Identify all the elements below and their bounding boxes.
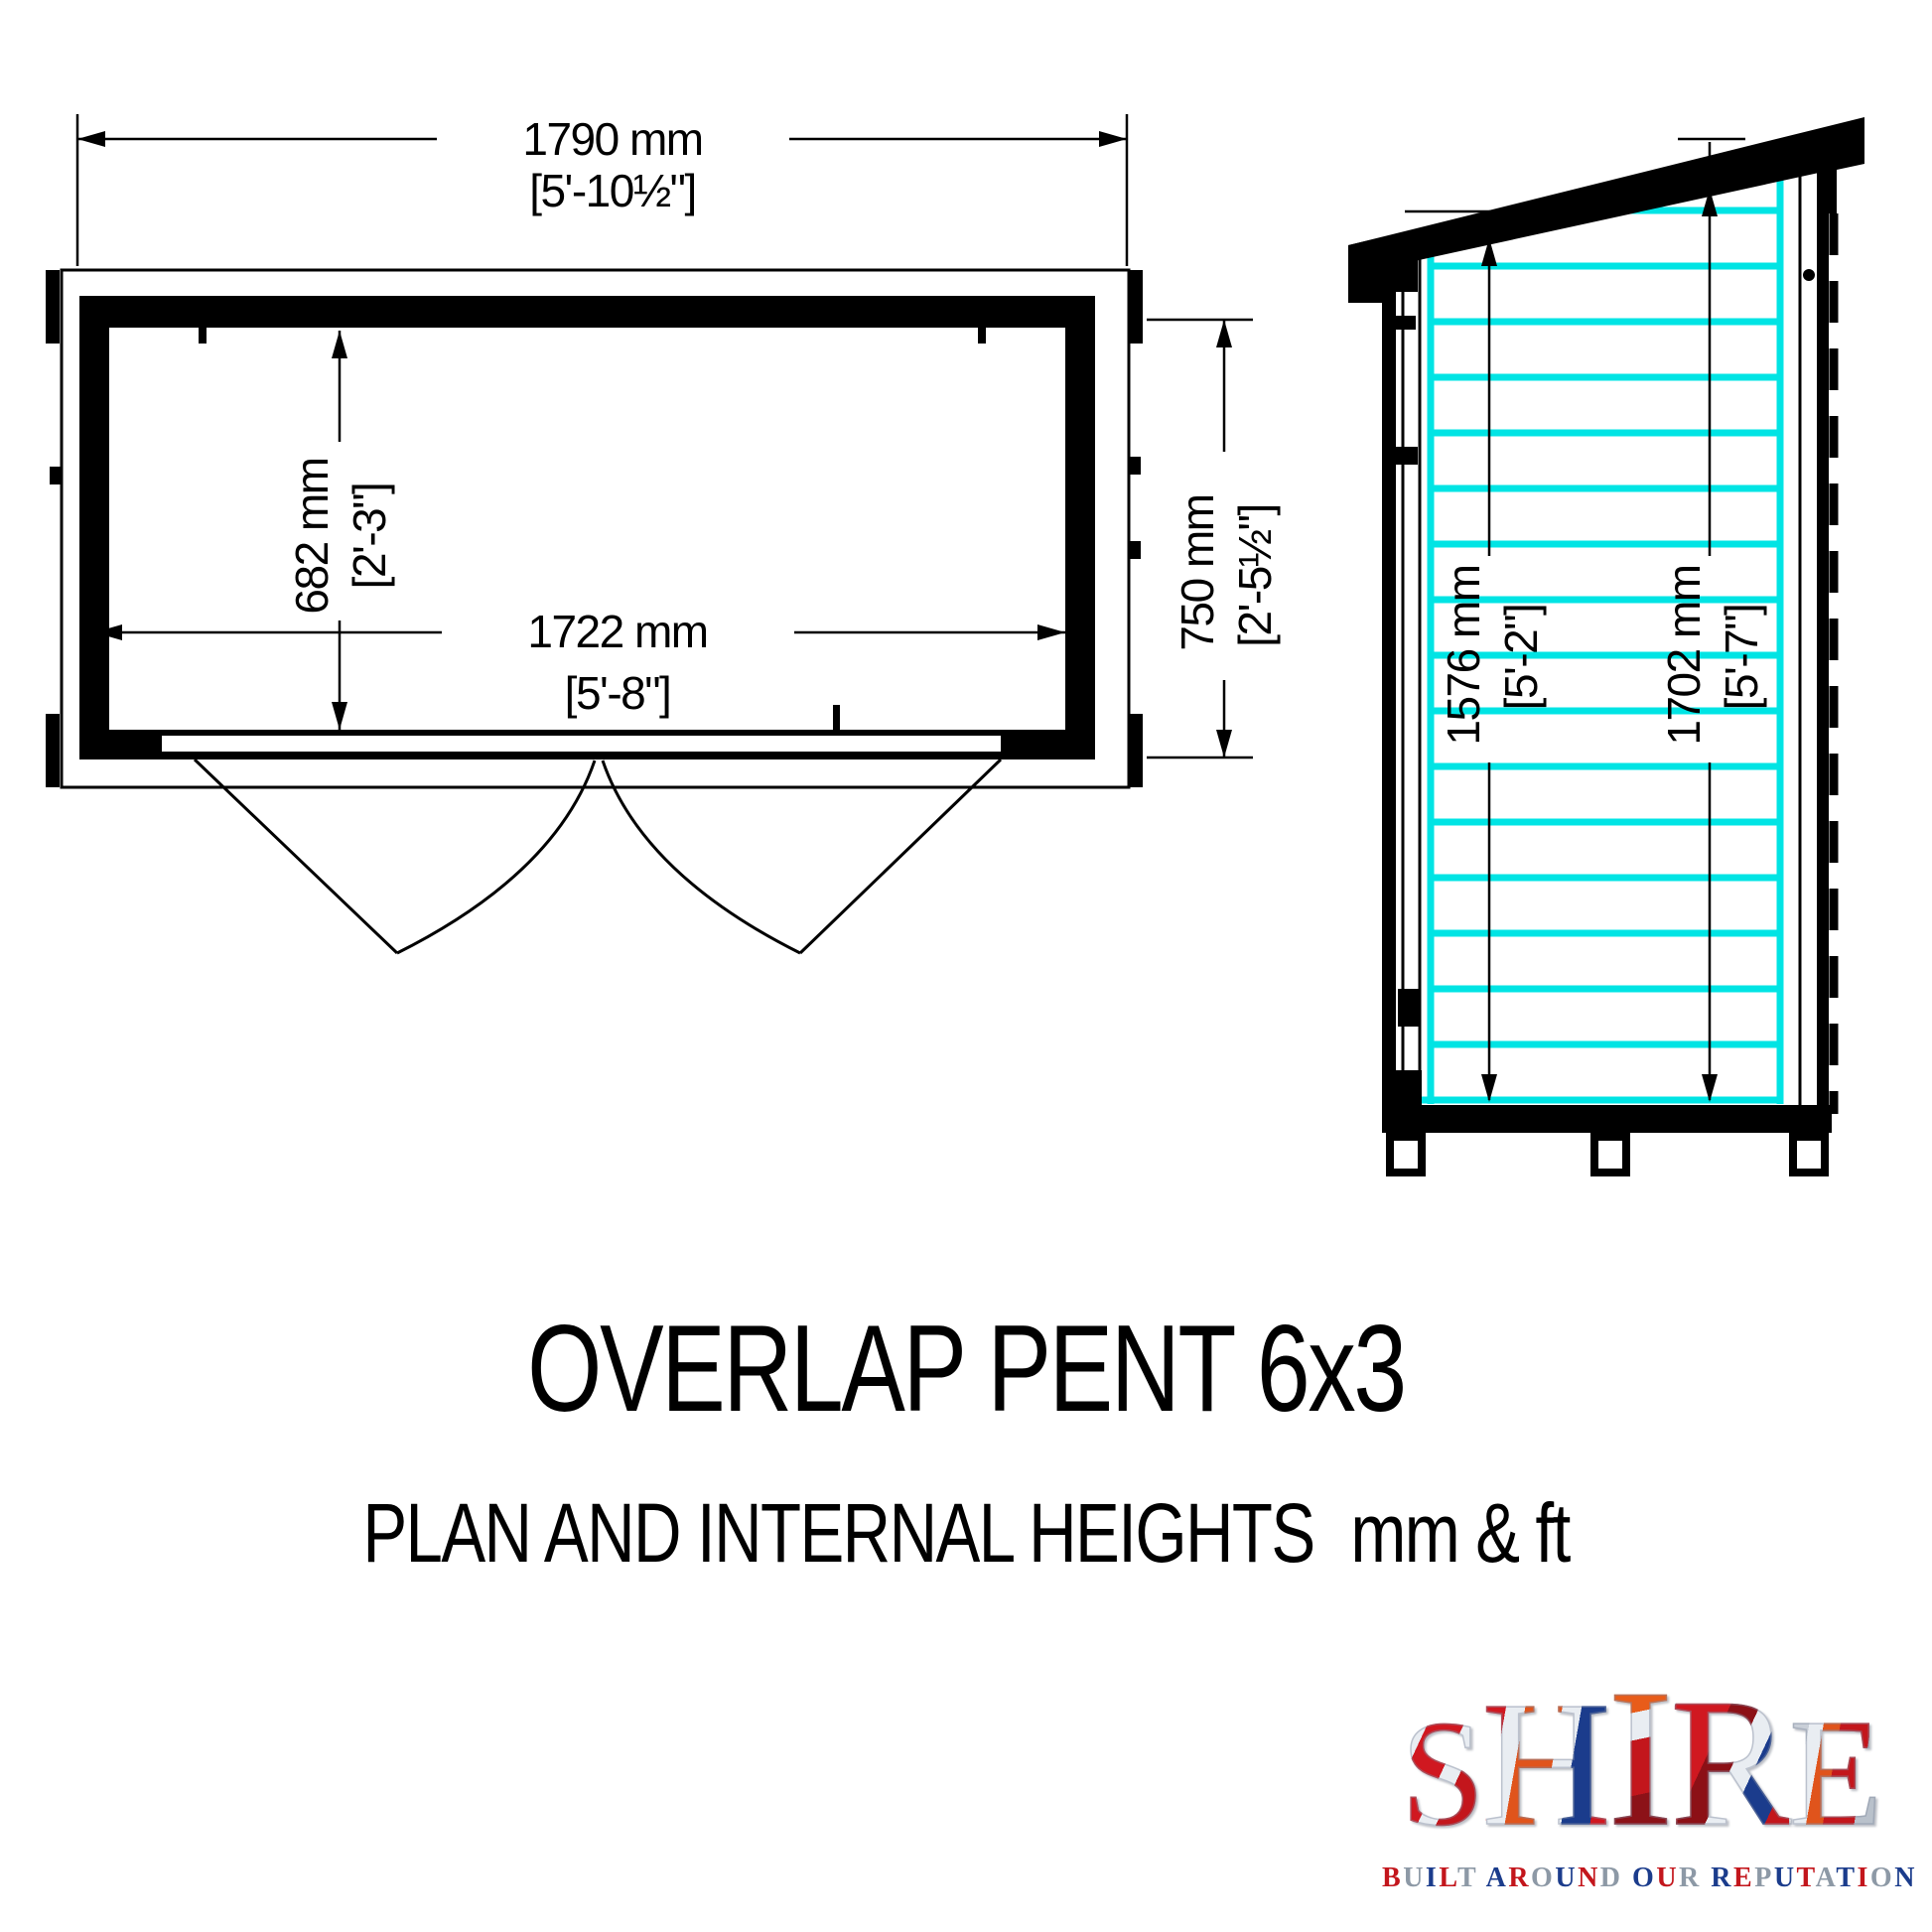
tagline-letter: T <box>1797 1863 1816 1893</box>
shire-logo-wordmark: SHIRE <box>1382 1660 1898 1857</box>
tagline-letter: D <box>1600 1863 1623 1893</box>
technical-drawing: 1790 mm [5'-10½"] 682 mm [2'-3"] 1722 mm… <box>0 0 1932 1241</box>
tagline-letter: U <box>1774 1863 1797 1893</box>
spec-sheet: { "title": "OVERLAP PENT 6x3", "subtitle… <box>0 0 1932 1932</box>
tagline-letter: A <box>1816 1863 1837 1893</box>
plan-internal-depth-mm: 682 mm <box>286 458 338 614</box>
side-roof <box>1348 117 1864 275</box>
tagline-letter: A <box>1486 1863 1509 1893</box>
side-rear-height-mm: 1702 mm <box>1658 565 1710 745</box>
plan-internal-width-ft: [5'-8"] <box>565 667 671 719</box>
tagline-letter: U <box>1555 1863 1578 1893</box>
dim-internal-depth: 682 mm [2'-3"] <box>286 331 395 730</box>
side-roof-left-fascia <box>1348 237 1382 303</box>
shire-logo-tagline: BUILT AROUND OUR REPUTATION <box>1382 1863 1898 1894</box>
side-rear-corner <box>1800 164 1834 1114</box>
page-subtitle: PLAN AND INTERNAL HEIGHTSmm & ft <box>194 1485 1739 1582</box>
shire-logo: SHIRE BUILT AROUND OUR REPUTATION <box>1382 1660 1898 1894</box>
brand-letter: R <box>1670 1661 1789 1863</box>
page-title: OVERLAP PENT 6x3 <box>212 1299 1720 1440</box>
tagline-letter: R <box>1711 1863 1733 1893</box>
brand-letter: S <box>1401 1690 1482 1857</box>
tagline-letter: B <box>1382 1863 1403 1893</box>
side-front-height-mm: 1576 mm <box>1438 565 1489 745</box>
tagline-letter: O <box>1632 1863 1656 1893</box>
dim-overall-width: 1790 mm [5'-10½"] <box>77 113 1127 266</box>
subtitle-units: mm & ft <box>1350 1486 1569 1580</box>
plan-overall-width-ft: [5'-10½"] <box>529 165 696 216</box>
plan-internal-width-mm: 1722 mm <box>527 606 707 657</box>
plan-overall-depth-ft: [2'-5½"] <box>1229 504 1281 647</box>
tagline-letter: N <box>1578 1863 1600 1893</box>
tagline-letter: U <box>1403 1863 1426 1893</box>
subtitle-text: PLAN AND INTERNAL HEIGHTS <box>362 1486 1313 1580</box>
plan-overall-depth-mm: 750 mm <box>1172 494 1223 650</box>
dim-internal-width: 1722 mm [5'-8"] <box>94 606 1065 719</box>
tagline-letter: P <box>1754 1863 1774 1893</box>
plan-view: 1790 mm [5'-10½"] 682 mm [2'-3"] 1722 mm… <box>46 113 1281 953</box>
side-floor <box>1382 1105 1832 1173</box>
plan-overall-width-mm: 1790 mm <box>522 113 702 165</box>
brand-letter: I <box>1607 1649 1670 1866</box>
side-door <box>1382 248 1422 1114</box>
tagline-letter: T <box>1457 1863 1478 1893</box>
side-rear-height-ft: [5'-7"] <box>1716 605 1767 711</box>
tagline-letter: I <box>1858 1863 1870 1893</box>
tagline-letter <box>1702 1863 1712 1893</box>
tagline-letter: R <box>1508 1863 1531 1893</box>
tagline-letter <box>1478 1863 1486 1893</box>
side-front-height-ft: [5'-2"] <box>1495 605 1547 711</box>
tagline-letter: U <box>1656 1863 1679 1893</box>
dim-overall-depth: 750 mm [2'-5½"] <box>1147 320 1281 758</box>
tagline-letter: O <box>1870 1863 1894 1893</box>
dim-rear-height: 1702 mm [5'-7"] <box>1658 139 1767 1102</box>
brand-letter: H <box>1481 1665 1607 1863</box>
tagline-letter: L <box>1439 1863 1457 1893</box>
tagline-letter: I <box>1426 1863 1439 1893</box>
dim-front-height: 1576 mm [5'-2"] <box>1405 211 1547 1102</box>
tagline-letter: O <box>1531 1863 1555 1893</box>
tagline-letter <box>1623 1863 1633 1893</box>
tagline-letter: T <box>1836 1863 1857 1893</box>
tagline-letter: E <box>1733 1863 1754 1893</box>
side-elevation: 1576 mm [5'-2"] 1702 mm [5'-7"] <box>1348 117 1864 1173</box>
tagline-letter: R <box>1679 1863 1702 1893</box>
tagline-letter: N <box>1894 1863 1917 1893</box>
brand-letter: E <box>1789 1689 1879 1858</box>
plan-internal-depth-ft: [2'-3"] <box>344 483 395 590</box>
